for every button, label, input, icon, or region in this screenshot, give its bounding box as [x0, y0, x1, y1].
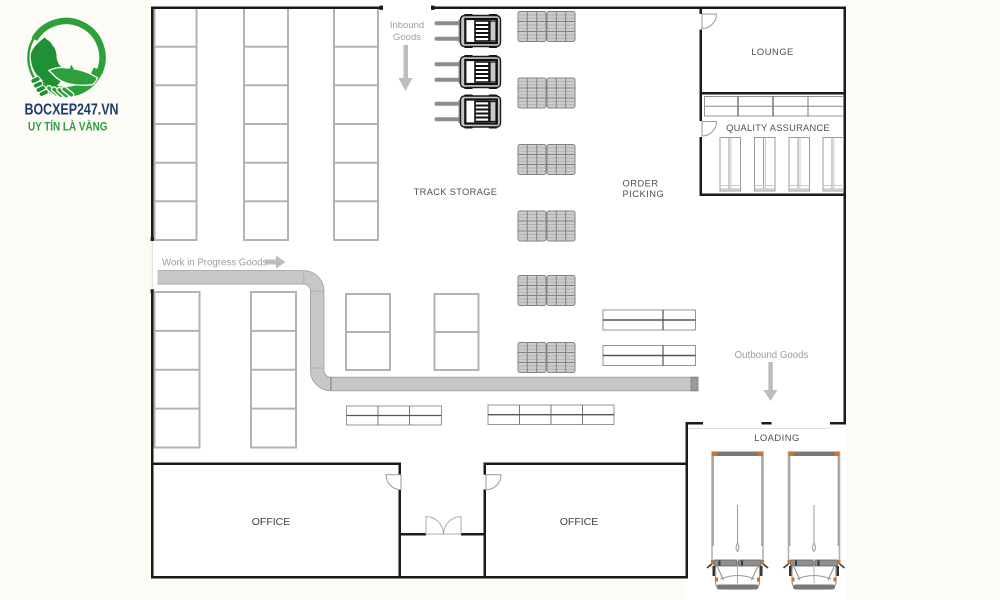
svg-text:Outbound Goods: Outbound Goods [735, 350, 809, 361]
svg-text:Work in Progress Goods: Work in Progress Goods [162, 258, 268, 269]
svg-text:LOADING: LOADING [754, 432, 800, 443]
svg-text:BOCXEP247.VN: BOCXEP247.VN [25, 102, 119, 119]
svg-text:OFFICE: OFFICE [252, 516, 291, 528]
svg-text:UY TÍN LÀ VÀNG: UY TÍN LÀ VÀNG [28, 121, 108, 134]
svg-text:LOUNGE: LOUNGE [751, 46, 794, 57]
svg-text:Goods: Goods [393, 32, 421, 43]
svg-text:QUALITY ASSURANCE: QUALITY ASSURANCE [726, 123, 830, 133]
svg-text:OFFICE: OFFICE [560, 516, 599, 528]
svg-text:TRACK STORAGE: TRACK STORAGE [414, 187, 498, 197]
svg-text:ORDER: ORDER [623, 179, 659, 189]
svg-text:Inbound: Inbound [390, 20, 424, 31]
svg-text:PICKING: PICKING [623, 189, 665, 199]
